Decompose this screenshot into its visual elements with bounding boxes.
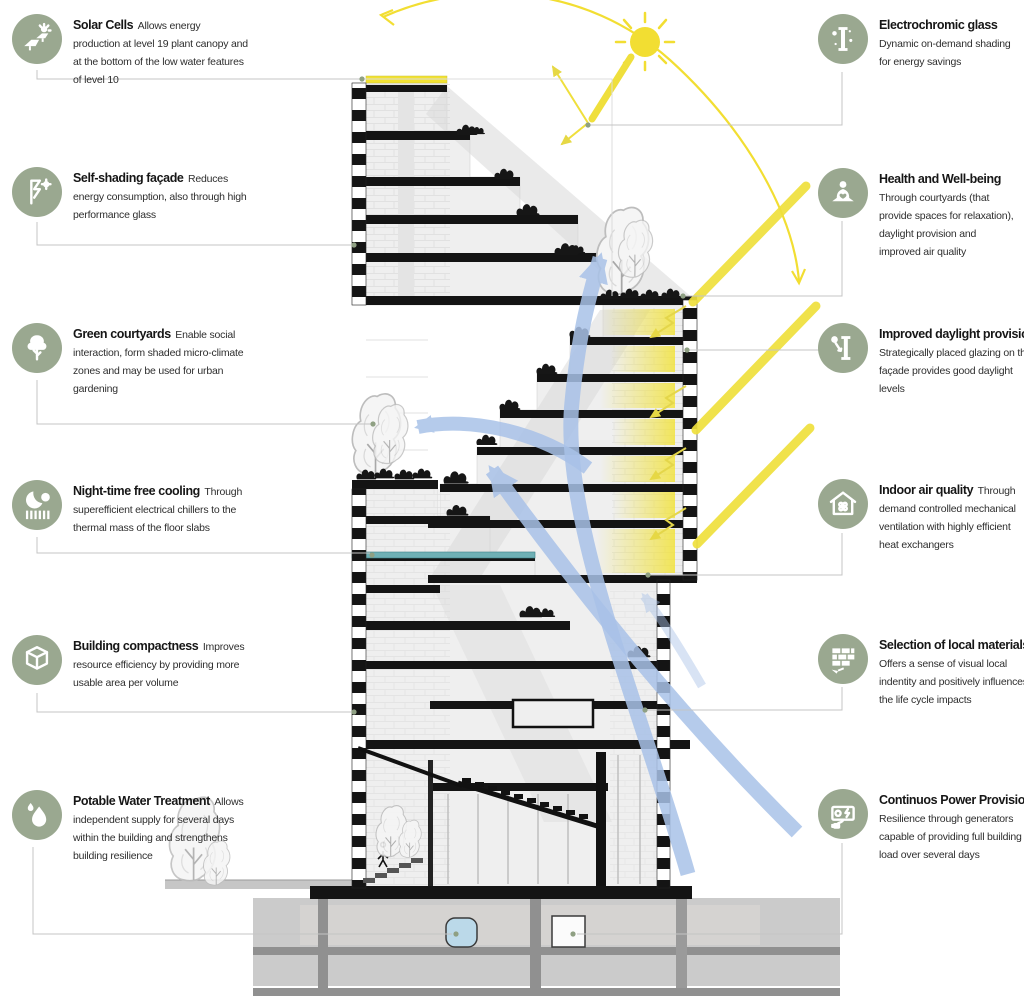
feature-title: Selection of local materials — [879, 638, 1024, 652]
callout-electrochromic: Electrochromic glass Dynamic on-demand s… — [818, 14, 1020, 70]
potable-water-tank — [446, 918, 477, 947]
callout-green-courtyards: Green courtyards Enable social interacti… — [12, 323, 250, 397]
chilled-slab — [352, 552, 535, 558]
feature-description: Strategically placed glazing on the faça… — [879, 347, 1024, 395]
feature-title: Continuos Power Provision — [879, 793, 1024, 807]
feature-title: Improved daylight provision — [879, 327, 1024, 341]
callout-self-shading: Self-shading façade Reduces energy consu… — [12, 167, 250, 223]
callout-health-wellbeing: Health and Well-being Through courtyards… — [818, 168, 1020, 260]
potable-water-icon — [12, 790, 62, 840]
self-shading-facade-icon — [12, 167, 62, 217]
building-compactness-icon — [12, 635, 62, 685]
generator-tank — [552, 916, 585, 947]
solar-cells-icon — [12, 14, 62, 64]
basement — [253, 898, 840, 996]
feature-title: Electrochromic glass — [879, 18, 997, 32]
feature-description: Offers a sense of visual local indentity… — [879, 658, 1024, 706]
feature-title: Night-time free cooling — [73, 484, 200, 498]
callout-solar-cells: Solar Cells Allows energy production at … — [12, 14, 250, 88]
callout-potable-water: Potable Water Treatment Allows independe… — [12, 790, 250, 864]
auditorium-platform — [513, 700, 593, 727]
feature-title: Potable Water Treatment — [73, 794, 210, 808]
callout-daylight-provision: Improved daylight provision Strategicall… — [818, 323, 1020, 397]
callout-building-compactness: Building compactness Improves resource e… — [12, 635, 250, 691]
callout-local-materials: Selection of local materials Offers a se… — [818, 634, 1020, 708]
daylight-provision-icon — [818, 323, 868, 373]
feature-title: Self-shading façade — [73, 171, 184, 185]
infographic-canvas: Solar Cells Allows energy production at … — [0, 0, 1024, 1007]
feature-title: Indoor air quality — [879, 483, 973, 497]
electrochromic-glass-icon — [818, 14, 868, 64]
feature-title: Solar Cells — [73, 18, 133, 32]
green-courtyards-icon — [12, 323, 62, 373]
continuous-power-icon — [818, 789, 868, 839]
feature-title: Building compactness — [73, 639, 198, 653]
feature-description: Dynamic on-demand shading for energy sav… — [879, 38, 1011, 68]
indoor-air-quality-icon — [818, 479, 868, 529]
night-cooling-icon — [12, 480, 62, 530]
callout-indoor-air: Indoor air quality Through demand contro… — [818, 479, 1020, 553]
feature-description: Through courtyards (that provide spaces … — [879, 192, 1013, 258]
feature-description: Resilience through generators capable of… — [879, 813, 1022, 861]
local-materials-icon — [818, 634, 868, 684]
callout-continuous-power: Continuos Power Provision Resilience thr… — [818, 789, 1020, 863]
feature-title: Health and Well-being — [879, 172, 1001, 186]
callout-night-cooling: Night-time free cooling Through supereff… — [12, 480, 250, 536]
feature-title: Green courtyards — [73, 327, 171, 341]
health-wellbeing-icon — [818, 168, 868, 218]
building-cross-section — [165, 76, 840, 996]
